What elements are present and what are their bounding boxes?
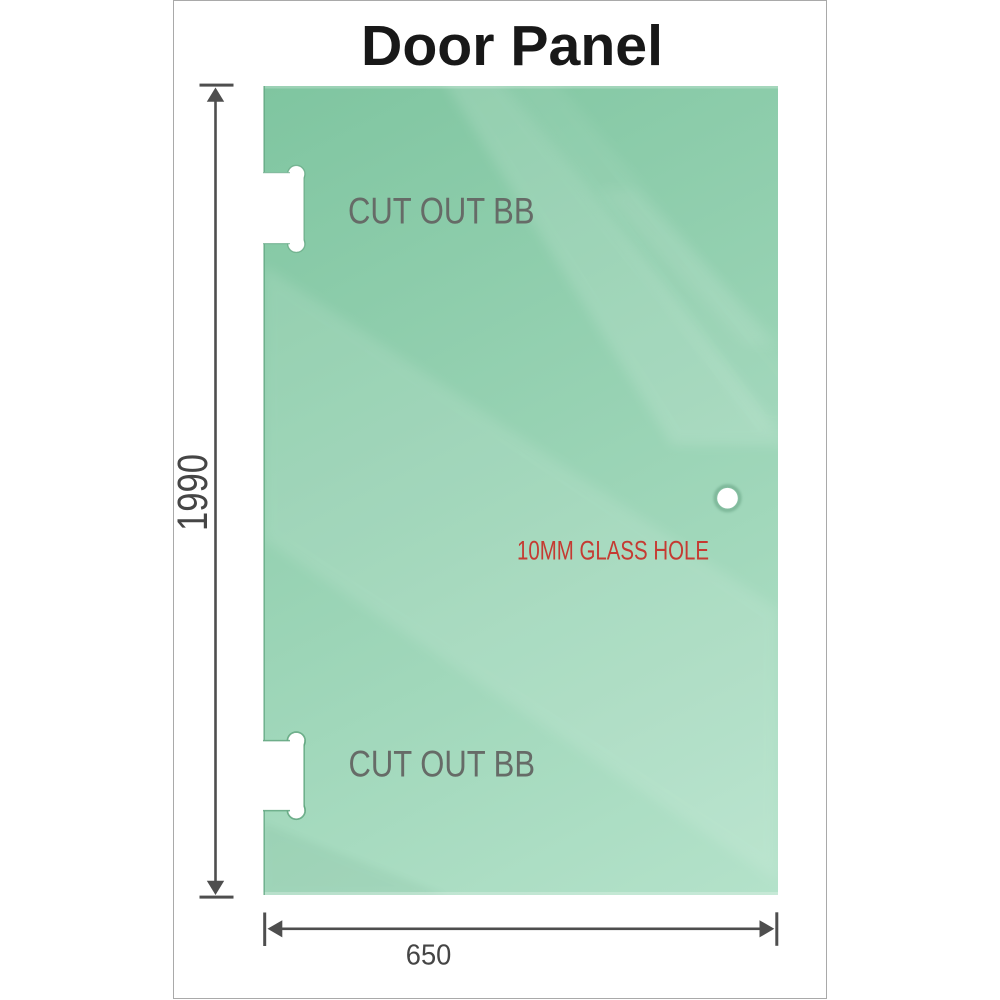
svg-text:650: 650	[406, 940, 452, 972]
svg-text:CUT OUT BB: CUT OUT BB	[349, 743, 536, 784]
svg-text:10MM GLASS HOLE: 10MM GLASS HOLE	[517, 536, 709, 566]
svg-text:Door Panel: Door Panel	[361, 14, 663, 78]
svg-text:CUT OUT BB: CUT OUT BB	[348, 190, 535, 231]
svg-text:1990: 1990	[169, 454, 217, 531]
